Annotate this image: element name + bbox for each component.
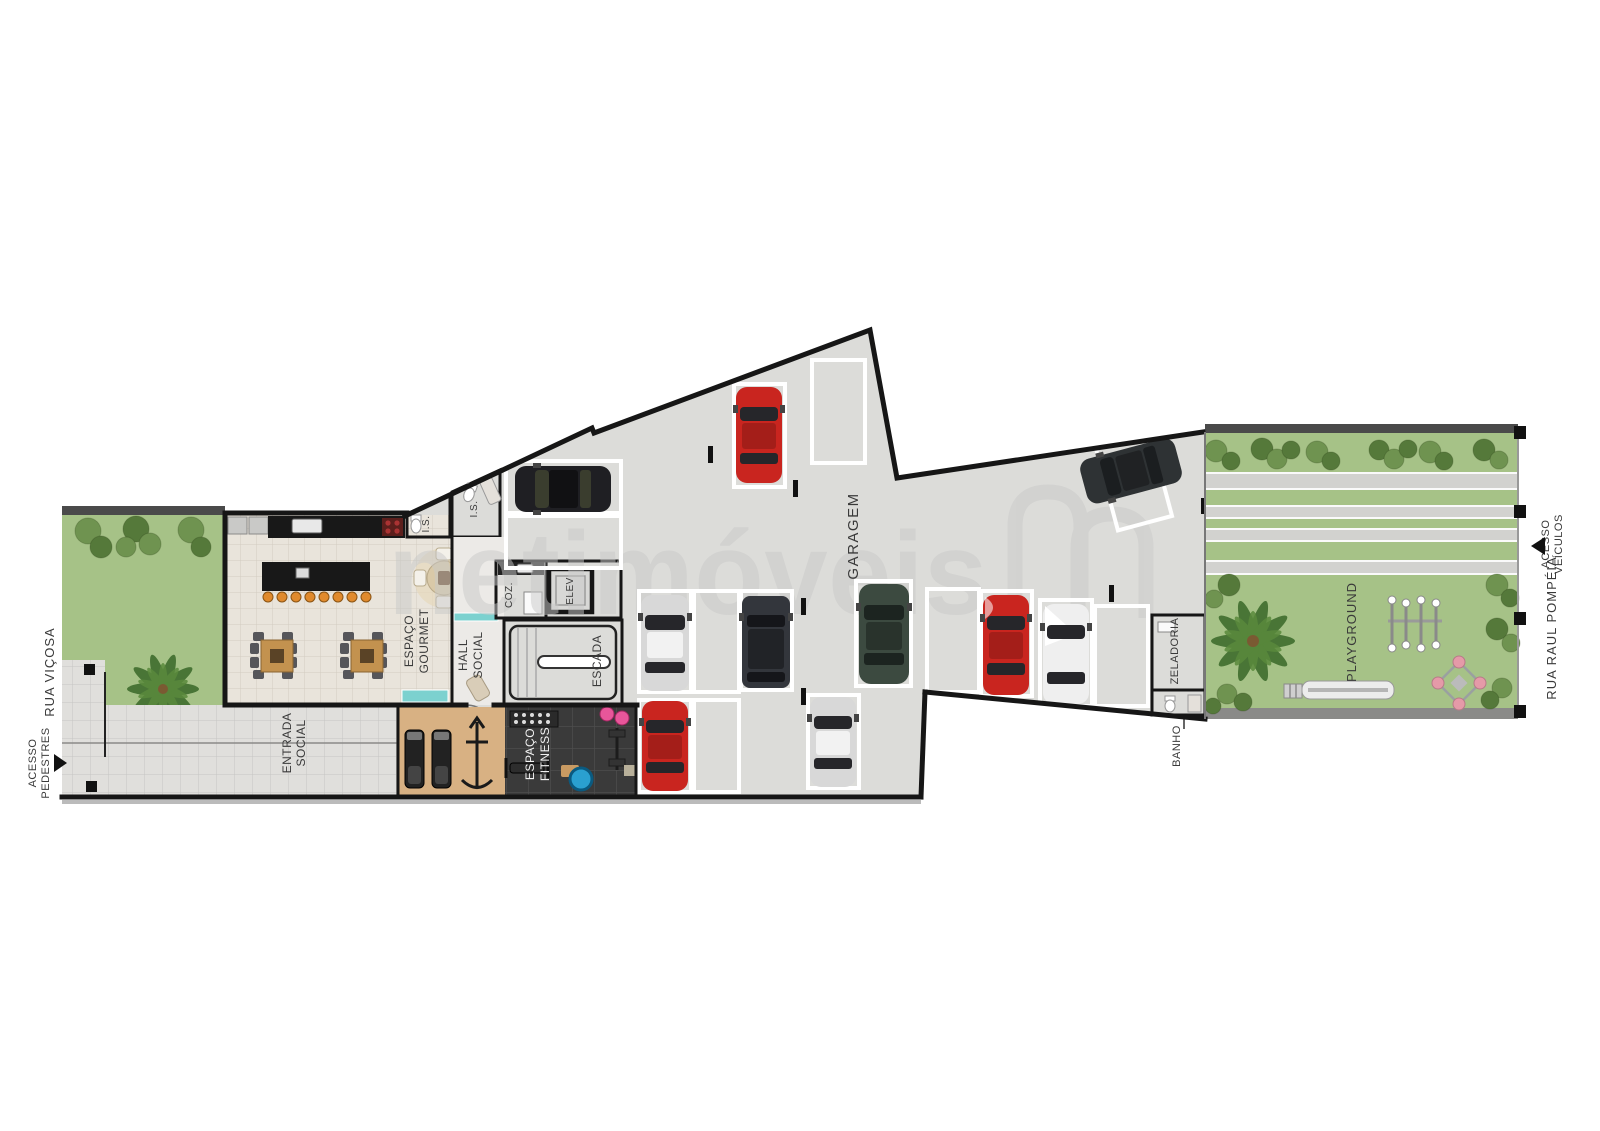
label-is-1: I.S. <box>421 515 432 532</box>
garden-top-wall <box>62 506 225 515</box>
car-white <box>1040 604 1092 704</box>
label-playground: PLAYGROUND <box>1344 582 1359 682</box>
treadmill <box>405 730 424 788</box>
treadmill <box>432 730 451 788</box>
label-entrada-social: SOCIAL <box>294 719 308 766</box>
label-is-2: I.S. <box>469 500 480 517</box>
label-hall: HALL <box>456 639 470 671</box>
label-rua-vicosa: RUA VIÇOSA <box>42 627 57 716</box>
label-social: SOCIAL <box>471 631 485 678</box>
label-gourmet: GOURMET <box>417 608 431 673</box>
label-coz: COZ. <box>504 582 515 608</box>
step-box <box>624 765 635 776</box>
label-espaco-fitness-1: ESPAÇO <box>523 728 537 780</box>
planter <box>402 690 448 702</box>
car-black <box>515 463 611 515</box>
banho-toilet <box>1165 696 1175 712</box>
label-elev: ELEV <box>565 577 576 605</box>
slide <box>1284 681 1394 699</box>
label-espaco: ESPAÇO <box>402 615 416 667</box>
double-sink <box>292 519 322 533</box>
label-rua-raul-pompeia: RUA RAUL POMPÉIA <box>1544 556 1559 699</box>
gate-post <box>84 664 95 675</box>
label-zeladoria: ZELADORIA <box>1169 617 1181 684</box>
car-suv-black <box>739 596 793 688</box>
medicine-ball <box>600 707 614 721</box>
medicine-ball <box>615 711 629 725</box>
banho-shower <box>1188 695 1201 712</box>
gate-post <box>86 781 97 792</box>
label-banho: BANHO <box>1171 725 1183 767</box>
car-green <box>856 584 912 684</box>
label-escada: ESCADA <box>590 635 604 687</box>
label-espaco-fitness-2: FITNESS <box>538 727 552 781</box>
dumbbell-rack <box>510 711 558 727</box>
car-silver <box>807 697 859 787</box>
label-garagem: GARAGEM <box>845 492 862 579</box>
floor-plan: netimóveis <box>0 0 1600 1131</box>
label-entrada: ENTRADA <box>280 713 294 774</box>
playground-area <box>1205 424 1520 719</box>
pedestrian-access: ACESSO PEDESTRES <box>27 727 67 798</box>
label-acesso: ACESSO <box>27 739 39 788</box>
label-pedestres: PEDESTRES <box>40 727 52 798</box>
car-red <box>733 387 785 483</box>
fitness-room <box>398 707 637 797</box>
arrow-left-icon <box>1531 537 1545 555</box>
car-red <box>980 595 1032 695</box>
car-red <box>639 701 691 791</box>
car-silver <box>638 595 692 691</box>
exercise-ball <box>570 768 592 790</box>
floor-plan-page: netimóveis <box>0 0 1600 1131</box>
